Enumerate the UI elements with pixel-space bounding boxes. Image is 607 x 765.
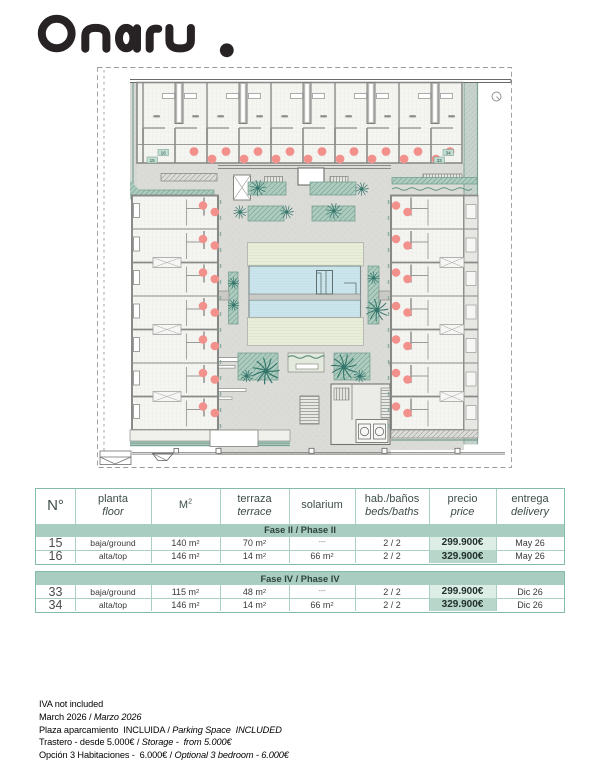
svg-text:33: 33	[437, 158, 443, 163]
svg-text:16: 16	[161, 150, 167, 155]
svg-text:34: 34	[446, 150, 452, 155]
svg-text:15: 15	[150, 158, 156, 163]
